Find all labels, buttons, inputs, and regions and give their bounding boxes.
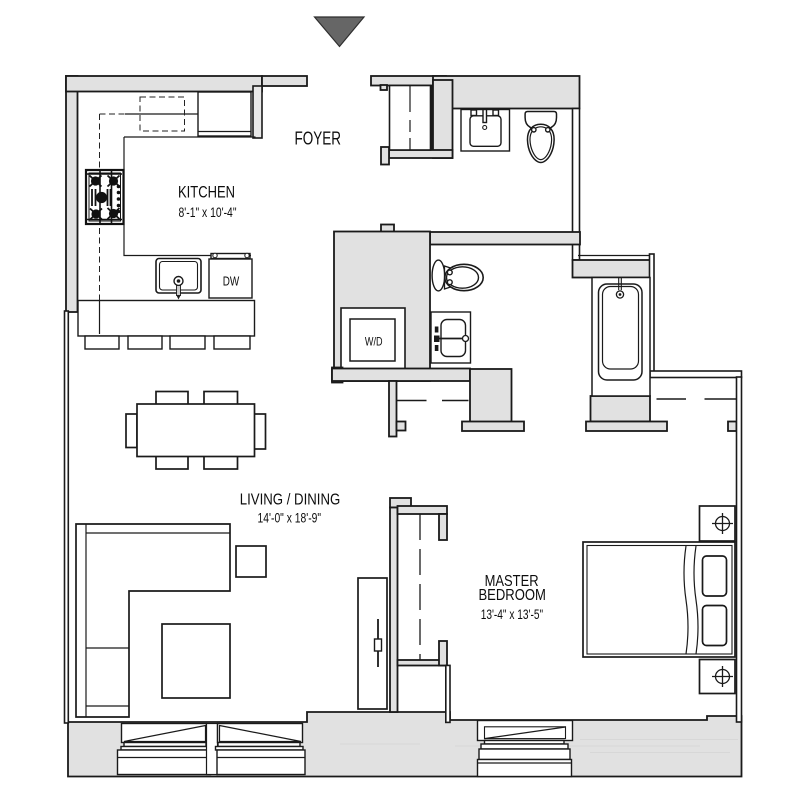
svg-text:BEDROOM: BEDROOM	[478, 587, 546, 604]
svg-text:14'-0" x 18'-9": 14'-0" x 18'-9"	[258, 510, 322, 525]
svg-text:W/D: W/D	[365, 334, 383, 348]
svg-text:8'-1" x 10'-4": 8'-1" x 10'-4"	[179, 205, 237, 220]
svg-text:KITCHEN: KITCHEN	[178, 184, 235, 202]
svg-text:FOYER: FOYER	[295, 128, 342, 149]
svg-text:LIVING / DINING: LIVING / DINING	[240, 491, 341, 508]
svg-text:DW: DW	[223, 275, 240, 289]
svg-text:13'-4" x 13'-5": 13'-4" x 13'-5"	[481, 607, 544, 622]
